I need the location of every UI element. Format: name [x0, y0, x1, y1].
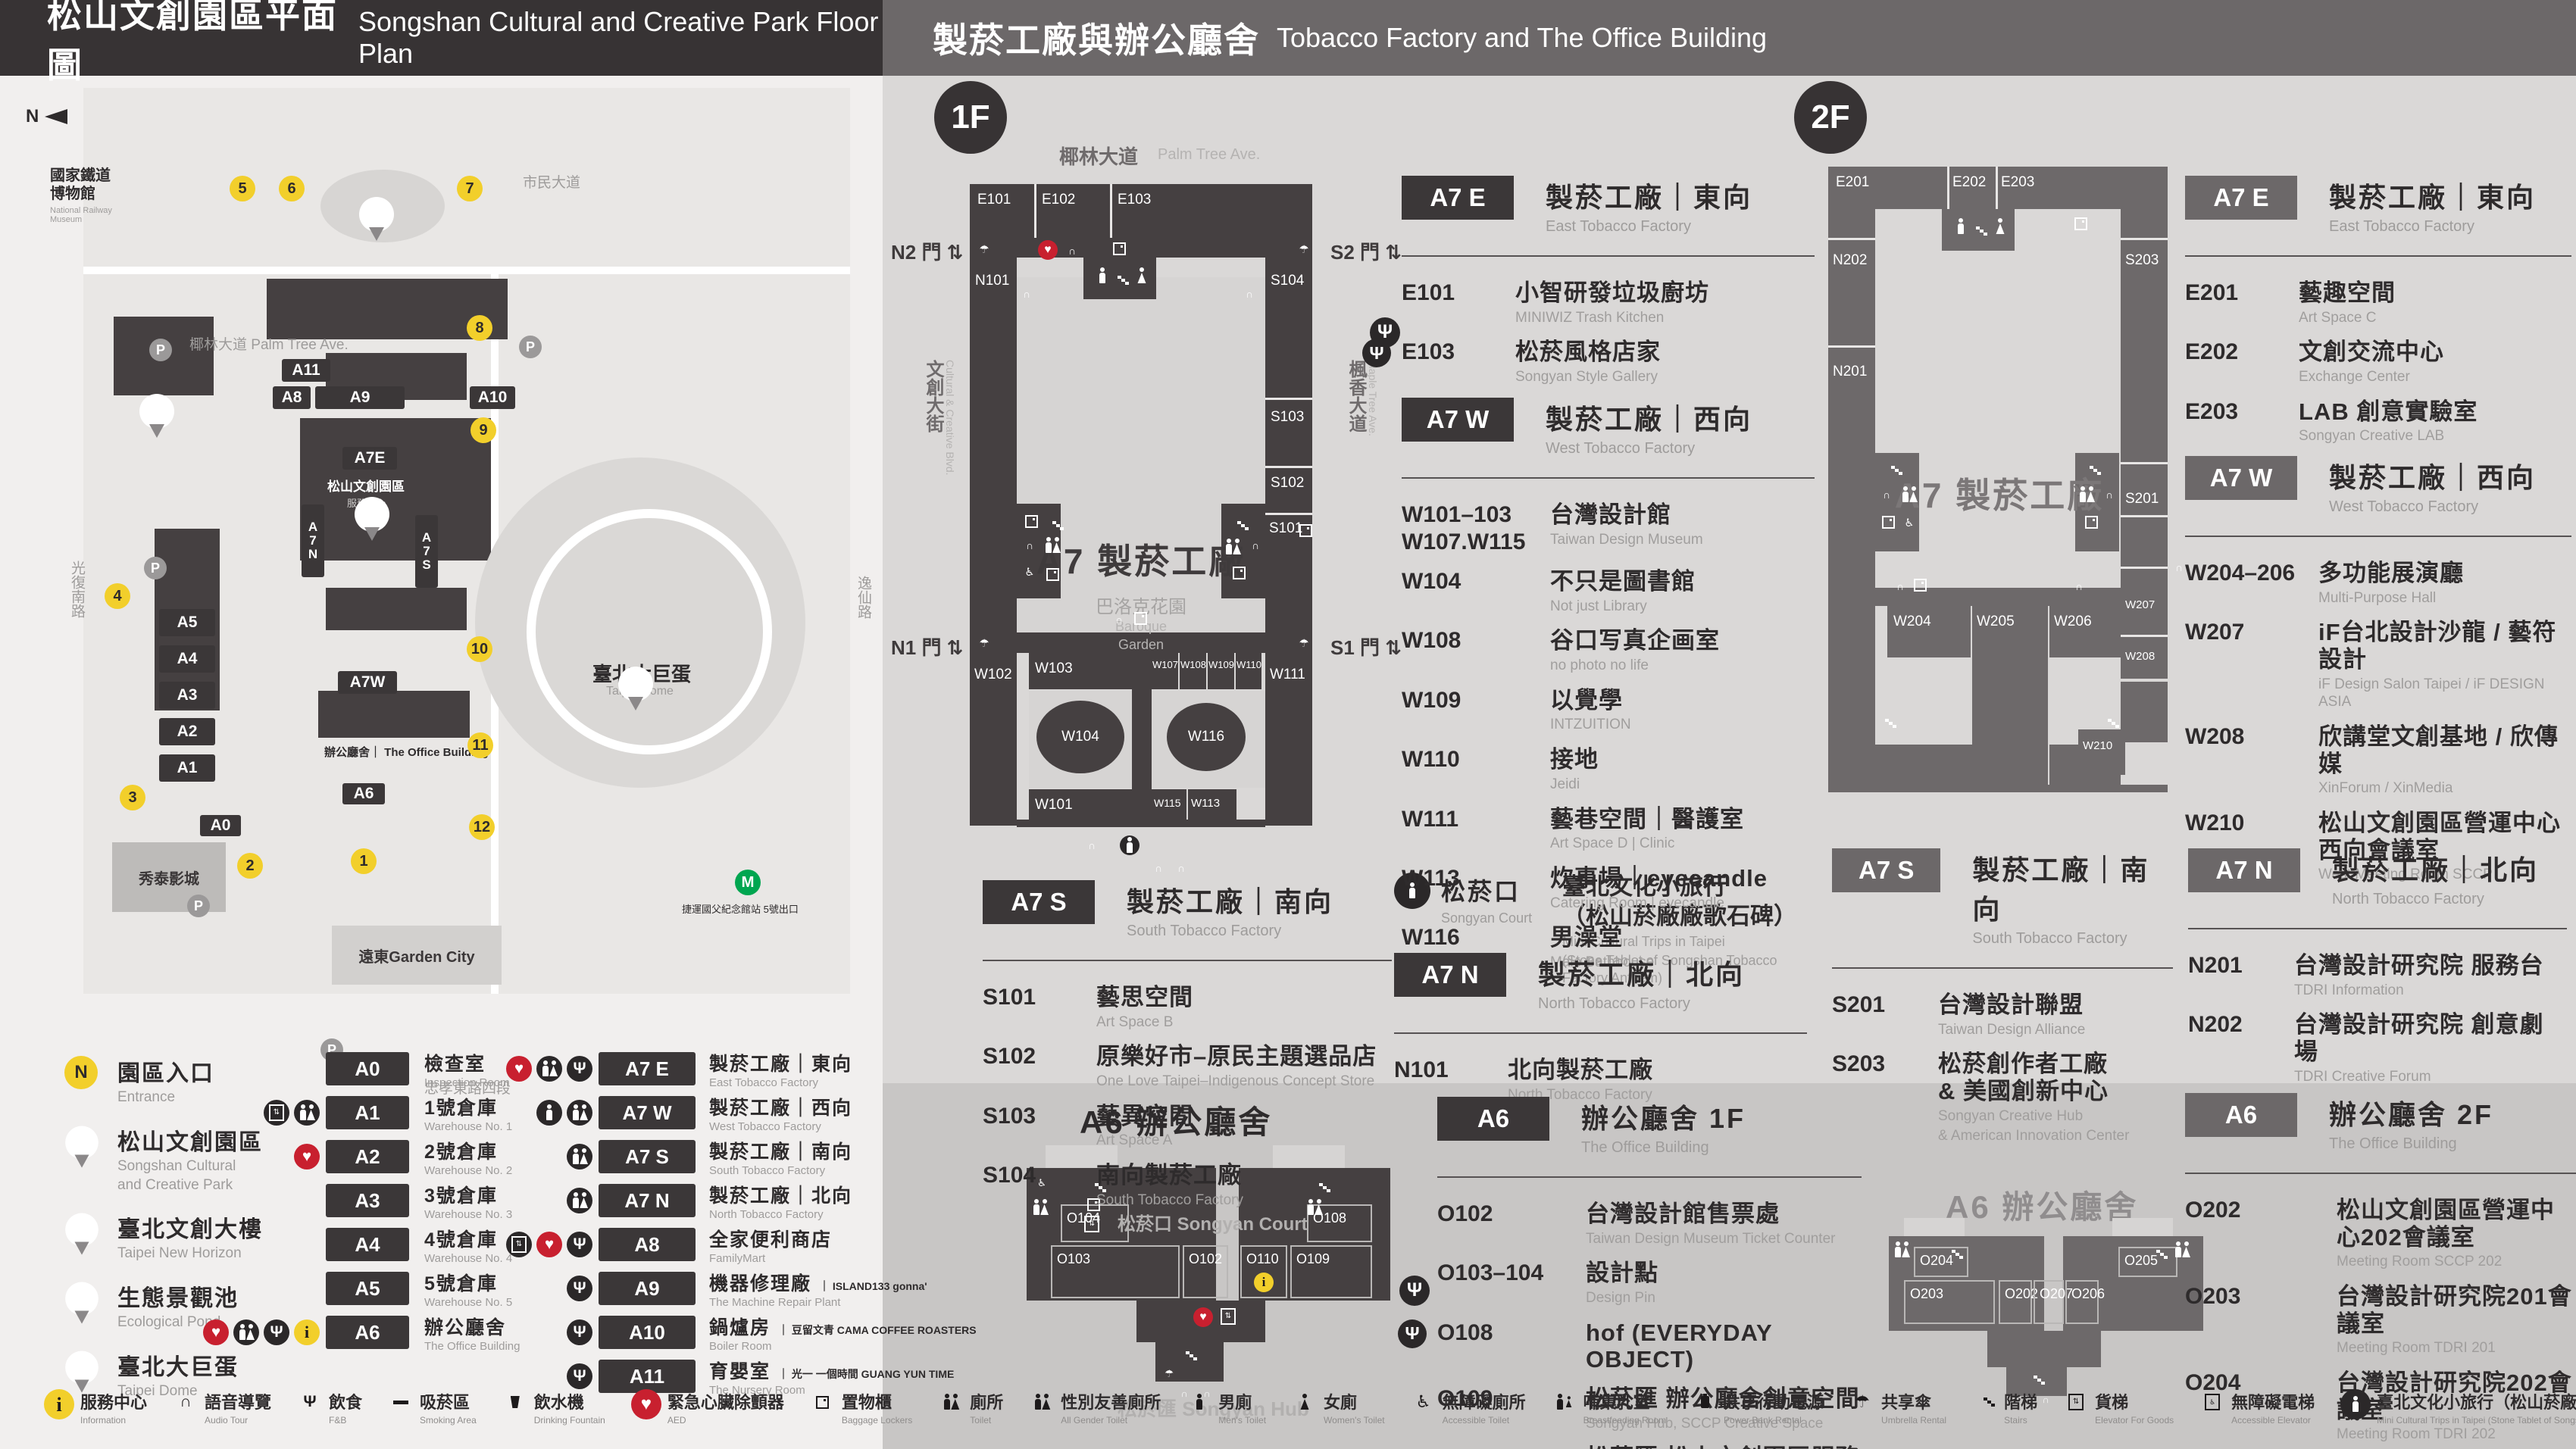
section-title-en: North Tobacco Factory	[2332, 891, 2539, 908]
venue-text: 台灣設計研究院 服務台TDRI Information	[2294, 952, 2544, 999]
strip-item-en: Toilet	[970, 1415, 1003, 1426]
venue-code-line: W108	[1402, 627, 1550, 654]
legend-place-zh: 臺北大巨蛋	[117, 1348, 239, 1382]
strip-item-aed: ♥緊急心臟除顫器AED	[631, 1389, 784, 1426]
strip-item-zh: 廁所	[970, 1389, 1003, 1413]
section-header: A7 N製菸工廠｜北向North Tobacco Factory	[2188, 848, 2567, 908]
info-glyph: i	[1262, 1275, 1266, 1290]
venue-row: O110松菸匯 松山文創園區服務中心Songyan Hub, SCCP Info…	[1437, 1444, 1862, 1449]
block-letter: 7	[423, 545, 430, 558]
aed-glyph: ♥	[302, 1148, 311, 1166]
locker-icon	[1880, 514, 1896, 530]
venue-code-line: W104	[1402, 568, 1550, 595]
venue-name-zh: 文創交流中心	[2299, 339, 2444, 366]
section-titles: 製菸工廠｜東向East Tobacco Factory	[2329, 176, 2536, 236]
strip-item-zh: 緊急心臟除顫器	[667, 1389, 784, 1413]
venue-code-line: W110	[1402, 746, 1550, 773]
stairs-icon	[1878, 715, 1895, 732]
venue-text: 接地Jeidi	[1550, 746, 1599, 793]
male-figure	[2079, 486, 2086, 503]
venue-name-en: Art Space D | Clinic	[1550, 835, 1744, 853]
water-glyph	[511, 1396, 520, 1408]
venue-name-en: iF Design Salon Taipei / iF DESIGN ASIA	[2318, 676, 2571, 712]
section-divider	[1402, 477, 1815, 479]
section-A7N-8: A7 N製菸工廠｜北向North Tobacco FactoryN201台灣設計…	[2188, 848, 2567, 1098]
legend-place-row: B臺北文創大樓Taipei New Horizon	[64, 1210, 263, 1263]
a7w-building	[326, 588, 467, 630]
room-label-W104: W104	[1061, 729, 1099, 745]
section-header: A6辦公廳舍 2FThe Office Building	[2185, 1093, 2576, 1153]
venue-name-en: Songyan Creative LAB	[2299, 427, 2478, 445]
room-label-W107: W107	[1152, 659, 1178, 670]
battery-glyph	[1701, 1396, 1709, 1408]
nursing-icon	[1552, 1389, 1577, 1415]
parking-icon: P	[187, 895, 210, 917]
strip-item-gelv: ⇅貨梯Elevator For Goods	[2063, 1389, 2174, 1426]
strip-item-text: 廁所Toilet	[970, 1389, 1003, 1426]
male-figure	[542, 1060, 549, 1077]
strip-item-zh: 女廁	[1324, 1389, 1385, 1413]
stairs-icon	[1180, 1348, 1195, 1363]
female-figure	[1233, 539, 1240, 555]
aed-icon: ♥	[631, 1389, 661, 1419]
venue-code-line: E201	[2185, 279, 2299, 307]
audio-glyph: ∩	[1023, 289, 1030, 300]
section-badge: A6	[2185, 1093, 2297, 1137]
venue-code: W204–206	[2185, 560, 2318, 607]
audio-glyph: ∩	[1088, 840, 1096, 851]
male-figure	[572, 1192, 579, 1209]
wc-icon	[2078, 486, 2095, 503]
section-badge: A7 N	[2188, 848, 2300, 892]
venue-code-line: O108	[1437, 1319, 1586, 1347]
locker-icon	[2072, 215, 2089, 232]
venue-name-en: Art Space A	[1096, 1132, 1193, 1150]
wc-glyph	[943, 1394, 958, 1410]
venue-name-zh: 欣講堂文創基地 / 欣傳媒	[2318, 723, 2571, 777]
section-title-zh: 製菸工廠｜北向	[2332, 848, 2539, 888]
venue-row: E202文創交流中心Exchange Center	[2185, 339, 2571, 386]
room-label-E102: E102	[1042, 192, 1075, 208]
elv-icon: ⇅	[1221, 1309, 1236, 1324]
venue-name-zh: 接地	[1550, 746, 1599, 773]
venue-name-zh: 台灣設計聯盟	[1938, 992, 2085, 1019]
strip-item-zh: 貨梯	[2095, 1389, 2174, 1413]
legend-building-text: 鍋爐房｜ 豆留文青 CAMA COFFEE ROASTERSBoiler Roo…	[709, 1313, 977, 1353]
section-title-zh: 製菸工廠｜東向	[2329, 176, 2536, 215]
f1-divider	[1034, 184, 1036, 238]
man-glyph	[1196, 1394, 1203, 1410]
strip-item-text: 共享傘Umbrella Rental	[1881, 1389, 1946, 1426]
man-icon	[1186, 1389, 1212, 1415]
venue-code-line: S203	[1832, 1051, 1938, 1078]
section-divider	[1437, 1176, 1862, 1178]
woman-icon	[1292, 1389, 1318, 1415]
f1-structure	[1265, 258, 1312, 632]
locker-glyph	[1882, 516, 1895, 529]
legend-building-text: 製菸工廠｜東向East Tobacco Factory	[709, 1049, 852, 1089]
room-label-W205: W205	[1977, 614, 2015, 630]
legend-building-text: 2號倉庫Warehouse No. 2	[424, 1137, 512, 1177]
locker-icon	[1132, 610, 1149, 626]
legend-building-zh: 3號倉庫	[424, 1181, 512, 1208]
strip-item-audio: ∩語音導覽Audio Tour	[173, 1389, 271, 1426]
strip-item-zh: 吸菸區	[420, 1389, 477, 1413]
male-figure	[572, 1148, 579, 1165]
stairs-glyph	[2108, 719, 2112, 722]
venue-row: O203台灣設計研究院201會議室Meeting Room TDRI 201	[2185, 1283, 2576, 1357]
legend-building-row: A7 W製菸工廠｜西向West Tobacco Factory	[599, 1095, 977, 1130]
venue-code-line: W210	[2185, 810, 2318, 837]
block-label-A9: A9	[315, 386, 405, 409]
legend-row-icons	[567, 1188, 592, 1213]
aed-icon: ♥	[294, 1144, 320, 1170]
stairs-glyph	[1237, 521, 1241, 524]
venue-row: E201藝趣空間Art Space C	[2185, 279, 2571, 326]
venue-name-zh: hof (EVERYDAY OBJECT)	[1586, 1319, 1862, 1373]
strip-item-zh: 語音導覽	[205, 1389, 271, 1413]
mrt-icon: M	[735, 870, 761, 895]
audio-icon: ∩	[1018, 286, 1035, 302]
fork-icon: Ψ	[297, 1389, 323, 1415]
section-title-en: The Office Building	[2329, 1135, 2493, 1153]
audio-icon: ∩	[1173, 860, 1190, 876]
block-label-A2: A2	[159, 718, 215, 745]
audio-glyph: ∩	[2175, 562, 2183, 573]
venue-code-line: W116	[1402, 924, 1550, 951]
audio-glyph: ∩	[1177, 863, 1185, 874]
wc-glyph	[1894, 1241, 1909, 1258]
street-palm-zh: 椰林大道	[1059, 142, 1138, 170]
venue-row: W111藝巷空間｜醫護室Art Space D | Clinic	[1402, 806, 1815, 853]
wc-icon	[1901, 486, 1918, 503]
entrance-number-8: 8	[467, 315, 492, 341]
room-label-W208: W208	[2125, 650, 2155, 663]
venue-row: O103–104設計點Design Pin	[1437, 1260, 1862, 1307]
room-label-W109: W109	[1208, 659, 1234, 670]
stairs-glyph	[1976, 226, 1980, 230]
venue-code: S203	[1832, 1051, 1938, 1145]
legend-building-zh: 機器修理廠	[709, 1269, 811, 1296]
block-label-A11: A11	[282, 359, 330, 382]
male-figure	[1902, 486, 1909, 503]
locker-glyph	[1134, 612, 1147, 625]
umb-icon: ☂	[1161, 1366, 1177, 1382]
strip-item-nursing: 哺集乳室Breastfeeding Room	[1552, 1389, 1666, 1426]
stairs-icon	[1972, 1389, 1998, 1415]
pin-tail	[75, 1242, 89, 1255]
locker-icon	[1297, 522, 1314, 539]
venue-name-en: Taiwan Design Museum Ticket Counter	[1586, 1230, 1835, 1248]
section-badge: A7 W	[2185, 456, 2297, 500]
venue-text: 台灣設計館售票處Taiwan Design Museum Ticket Coun…	[1586, 1201, 1835, 1248]
venue-code: S102	[983, 1043, 1096, 1090]
block-label-A8: A8	[273, 386, 311, 409]
parking-icon: P	[144, 557, 167, 579]
legend-place-icon-cell: C	[64, 1279, 117, 1329]
wc-glyph	[542, 1060, 557, 1077]
female-figure	[1043, 1394, 1049, 1410]
legend-row-icons: ♥	[294, 1144, 320, 1170]
room-label-E103: E103	[1118, 192, 1151, 208]
floor-plan-poster: 松山文創園區平面圖 Songshan Cultural and Creative…	[0, 0, 2576, 1449]
aed-glyph: ♥	[514, 1060, 524, 1078]
room-label-S102: S102	[1271, 475, 1304, 492]
legend-place-zh: 生態景觀池	[117, 1279, 239, 1313]
legend-building-row: ⇅♥ΨA8全家便利商店FamilyMart	[599, 1227, 977, 1262]
map-legend: N園區入口EntranceA松山文創園區Songshan Culturaland…	[0, 1045, 883, 1379]
section-titles: 製菸工廠｜西向West Tobacco Factory	[1546, 398, 1752, 457]
room-label-W111: W111	[1270, 667, 1305, 683]
f2-structure	[2121, 682, 2168, 742]
legend-building-zh: 製菸工廠｜北向	[709, 1181, 852, 1208]
venue-name-en: INTZUITION	[1550, 716, 1631, 734]
locker-glyph	[816, 1396, 829, 1409]
section-A7E-5: A7 E製菸工廠｜東向East Tobacco FactoryE201藝趣空間A…	[2185, 176, 2571, 457]
man-glyph	[1958, 218, 1965, 235]
floor-1f-label: 1F	[951, 98, 989, 136]
legend-place-en: and Creative Park	[117, 1177, 263, 1194]
venue-text: 松菸匯 松山文創園區服務中心Songyan Hub, SCCP Informat…	[1586, 1444, 1862, 1449]
audio-icon: ∩	[1892, 578, 1909, 595]
smoke-icon	[388, 1389, 414, 1415]
venue-code: W101–103W107.W115	[1402, 501, 1550, 556]
fork-glyph: Ψ	[573, 1279, 586, 1298]
stairs-icon	[2027, 1372, 2043, 1388]
venue-row: S201台灣設計聯盟Taiwan Design Alliance	[1832, 992, 2173, 1038]
fork-icon: Ψ	[567, 1319, 592, 1345]
block-letter: N	[308, 548, 317, 561]
floor-1f-circle: 1F	[934, 81, 1007, 154]
female-figure	[580, 1192, 587, 1209]
room-label-E201: E201	[1836, 174, 1869, 191]
room-O203: O203	[1904, 1280, 1995, 1324]
stairs-icon	[1111, 272, 1127, 289]
man-glyph	[1099, 267, 1106, 284]
woman-glyph	[1302, 1394, 1308, 1410]
legend-building-en: Inspection Room	[424, 1076, 510, 1089]
pin-tail	[75, 1311, 89, 1324]
section-title-en: The Office Building	[1581, 1139, 1746, 1157]
venue-code: O102	[1437, 1201, 1586, 1248]
legend-building-text: 全家便利商店FamilyMart	[709, 1225, 832, 1265]
strip-item-water: 飲水機Drinking Fountain	[502, 1389, 605, 1426]
block-letter: 7	[309, 534, 316, 548]
legend-row-icons	[567, 1144, 592, 1170]
venue-name-zh: 台灣設計研究院 服務台	[2294, 952, 2544, 979]
whl-glyph: ♿	[1904, 517, 1914, 529]
venue-name-zh: 藝趣空間	[2299, 279, 2396, 307]
legend-building-row: A7 S製菸工廠｜南向South Tobacco Factory	[599, 1139, 977, 1174]
strip-item-text: 哺集乳室Breastfeeding Room	[1583, 1389, 1666, 1426]
legend-building-badge: A6	[326, 1316, 409, 1349]
room-label-W110: W110	[1236, 659, 1261, 670]
venue-code: S103	[983, 1103, 1096, 1150]
venue-name-zh: 台灣設計研究院201會議室	[2337, 1283, 2576, 1337]
venue-code: W208	[2185, 723, 2318, 798]
room-O202: O202	[1999, 1280, 2032, 1324]
floor-2f-circle: 2F	[1794, 81, 1867, 154]
aed-glyph: ♥	[641, 1394, 652, 1415]
room-label-O109: O109	[1296, 1251, 1330, 1267]
umb-glyph: ☂	[1855, 1392, 1870, 1412]
f1-structure	[970, 258, 1017, 632]
strip-item-en: Accessible Toilet	[1443, 1415, 1526, 1426]
legend-row-icons: ♥Ψ	[506, 1056, 592, 1082]
section-badge: A7 S	[983, 880, 1095, 924]
aed-glyph: ♥	[211, 1324, 220, 1341]
section-badge: A7 E	[2185, 176, 2297, 220]
woman-icon	[1992, 218, 2009, 235]
locker-icon	[810, 1389, 836, 1415]
venue-text: 藝趣空間Art Space C	[2299, 279, 2396, 326]
venue-name-zh: 台灣設計館售票處	[1586, 1201, 1835, 1228]
venue-code-line: S104	[983, 1162, 1096, 1189]
entrance-number-7: 7	[457, 176, 483, 201]
entrance-number-12: 12	[469, 814, 495, 840]
male-figure	[1557, 1394, 1564, 1410]
section-badge: A7 S	[1832, 848, 1940, 892]
f1-structure	[1132, 653, 1152, 826]
legend-building-text: 4號倉庫Warehouse No. 4	[424, 1225, 512, 1265]
section-divider	[2185, 536, 2571, 537]
pin-tail	[149, 424, 164, 438]
locker-glyph	[2085, 516, 2098, 529]
section-title-en: South Tobacco Factory	[1972, 930, 2173, 948]
strip-item-whl: ♿無障礙廁所Accessible Toilet	[1411, 1389, 1526, 1426]
right-header: 製菸工廠與辦公廳舍 Tobacco Factory and The Office…	[883, 0, 2576, 76]
room-label-N201: N201	[1833, 364, 1867, 380]
strip-item-en: Baggage Lockers	[842, 1415, 912, 1426]
aed-icon: ♥	[1193, 1307, 1213, 1327]
aed-glyph: ♥	[1044, 243, 1051, 257]
section-A7S-2: A7 S製菸工廠｜南向South Tobacco FactoryS101藝思空間…	[983, 880, 1392, 1222]
legend-row-icons: ⇅	[264, 1100, 320, 1126]
venue-code: O108	[1437, 1319, 1586, 1373]
aed-icon: ♥	[1038, 240, 1058, 260]
venue-name-zh: & 美國創新中心	[1938, 1078, 2129, 1105]
wc-glyph	[1902, 486, 1917, 503]
fork-glyph: Ψ	[270, 1323, 283, 1341]
venue-name-en: Songyan Creative Hub	[1938, 1107, 2129, 1126]
legend-building-row: A33號倉庫Warehouse No. 3	[326, 1183, 520, 1218]
legend-building-en: South Tobacco Factory	[709, 1164, 852, 1177]
court-glyph	[2352, 1396, 2359, 1413]
venue-name-zh: 谷口写真企画室	[1550, 627, 1720, 654]
venue-row: W113炊事場｜eyecandleCatering Room | eyecand…	[1402, 865, 1815, 912]
venue-code-line: W111	[1402, 806, 1550, 833]
section-title-en: South Tobacco Factory	[1127, 923, 1333, 940]
aed-glyph: ♥	[1199, 1310, 1206, 1324]
strip-item-text: 男廁Men's Toilet	[1218, 1389, 1266, 1426]
venue-name-en: Meeting Room TDRI 201	[2337, 1339, 2576, 1357]
venue-code: W104	[1402, 568, 1550, 615]
audio-glyph: ∩	[2106, 489, 2113, 501]
venue-name-en: Not just Library	[1550, 598, 1696, 616]
legend-row-icons: Ψ	[567, 1276, 592, 1301]
park-center-label: 松山文創園區	[327, 476, 405, 495]
audio-icon: ∩	[1111, 611, 1127, 628]
a6f2-title: A6 辦公廳舍	[1946, 1182, 2138, 1228]
venue-row: W109以覺學INTZUITION	[1402, 687, 1815, 734]
room-label-S201: S201	[2125, 491, 2159, 507]
venue-name-zh: 炊事場｜eyecandle	[1550, 865, 1768, 892]
legend-building-badge: A3	[326, 1184, 409, 1217]
venue-text: iF台北設計沙龍 / 藝符設計iF Design Salon Taipei / …	[2318, 619, 2571, 711]
stairs-glyph	[2034, 1376, 2037, 1379]
umb-glyph: ☂	[979, 244, 989, 256]
stairs-icon	[1946, 1247, 1961, 1262]
f2-structure	[1828, 606, 1875, 785]
legend-building-zh-row: 製菸工廠｜西向	[709, 1093, 852, 1120]
railway-museum-label: 國家鐵道博物館	[50, 167, 118, 203]
venue-row: S102原樂好市–原民主題選品店One Love Taipei–Indigeno…	[983, 1043, 1392, 1090]
legend-building-badge: A11	[599, 1360, 696, 1393]
female-figure	[308, 1104, 314, 1121]
f1-divider	[1265, 466, 1312, 468]
audio-glyph: ∩	[2075, 581, 2083, 592]
venue-code: W113	[1402, 865, 1550, 912]
venue-row: S101藝思空間Art Space B	[983, 984, 1392, 1031]
venue-name-zh: 南向製菸工廠	[1096, 1162, 1243, 1189]
venue-code-line: E202	[2185, 339, 2299, 366]
strip-item-wc: 廁所Toilet	[938, 1389, 1003, 1426]
venue-code: N201	[2188, 952, 2294, 999]
venue-name-zh: LAB 創意實驗室	[2299, 398, 2478, 426]
legend-building-brand: ｜ ISLAND133 gonna'	[819, 1279, 927, 1294]
room-O207: O207	[2034, 1280, 2064, 1324]
room-label-W206: W206	[2054, 614, 2092, 630]
wc-icon	[1894, 1242, 1909, 1257]
locker-icon	[1230, 564, 1247, 581]
entrance-number-11: 11	[467, 732, 493, 758]
legend-building-badge: A10	[599, 1316, 696, 1349]
legend-building-badge: A5	[326, 1272, 409, 1305]
venue-row: W110接地Jeidi	[1402, 746, 1815, 793]
garden-city-label: 遠東Garden City	[358, 945, 474, 967]
section-title-en: East Tobacco Factory	[2329, 218, 2536, 236]
section-header: A7 S製菸工廠｜南向South Tobacco Factory	[1832, 848, 2173, 948]
section-titles: 製菸工廠｜南向South Tobacco Factory	[1127, 880, 1333, 940]
compass-arrow-icon	[45, 109, 67, 124]
venue-name-en: South Tobacco Factory	[1096, 1191, 1243, 1210]
strip-item-man: 男廁Men's Toilet	[1186, 1389, 1266, 1426]
strip-item-en: Umbrella Rental	[1881, 1415, 1946, 1426]
legend-building-zh: 全家便利商店	[709, 1225, 832, 1252]
venue-row: W207iF台北設計沙龍 / 藝符設計iF Design Salon Taipe…	[2185, 619, 2571, 711]
venue-code-line: E101	[1402, 279, 1515, 307]
legend-building-row: ♥ΨA7 E製菸工廠｜東向East Tobacco Factory	[599, 1051, 977, 1086]
legend-building-badge: A7 S	[599, 1140, 696, 1173]
street-east-zh: 楓香大道	[1343, 360, 1369, 433]
locker-glyph	[1914, 579, 1927, 592]
venue-code: O203	[2185, 1283, 2337, 1357]
section-title-en: East Tobacco Factory	[1546, 218, 1752, 236]
block-label-A7N: A7N	[302, 504, 324, 577]
legend-places: N園區入口EntranceA松山文創園區Songshan Culturaland…	[64, 1054, 263, 1417]
legend-buildings-1: A0檢查室Inspection Room⇅A11號倉庫Warehouse No.…	[326, 1051, 520, 1359]
venue-text: 藝異空間Art Space A	[1096, 1103, 1193, 1150]
room-O103: O103	[1051, 1245, 1180, 1298]
woman-glyph	[1139, 267, 1146, 284]
venue-row: W101–103W107.W115台灣設計館Taiwan Design Muse…	[1402, 501, 1815, 556]
strip-item-en: Audio Tour	[205, 1415, 271, 1426]
section-titles: 製菸工廠｜西向West Tobacco Factory	[2329, 456, 2536, 516]
fork-icon: Ψ	[567, 1276, 592, 1301]
venue-code: W108	[1402, 627, 1550, 674]
fork-glyph: Ψ	[1407, 1280, 1422, 1301]
strip-item-aelv: ♿無障礙電梯Accessible Elevator	[2199, 1389, 2315, 1426]
